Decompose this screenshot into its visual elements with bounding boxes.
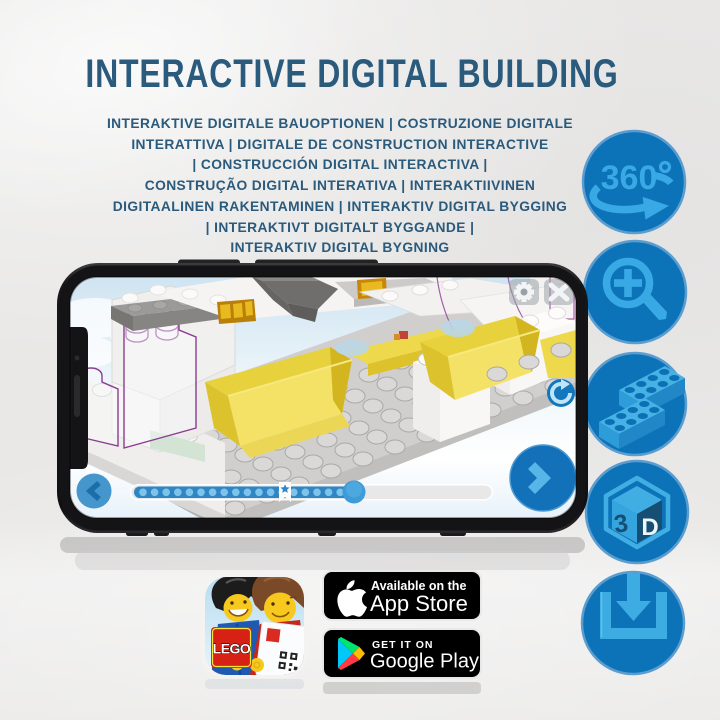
svg-text:App Store: App Store [370, 591, 468, 616]
svg-text:GET IT ON: GET IT ON [372, 639, 434, 651]
svg-text:Google Play: Google Play [370, 651, 479, 673]
svg-text:LEGO: LEGO [213, 641, 251, 657]
